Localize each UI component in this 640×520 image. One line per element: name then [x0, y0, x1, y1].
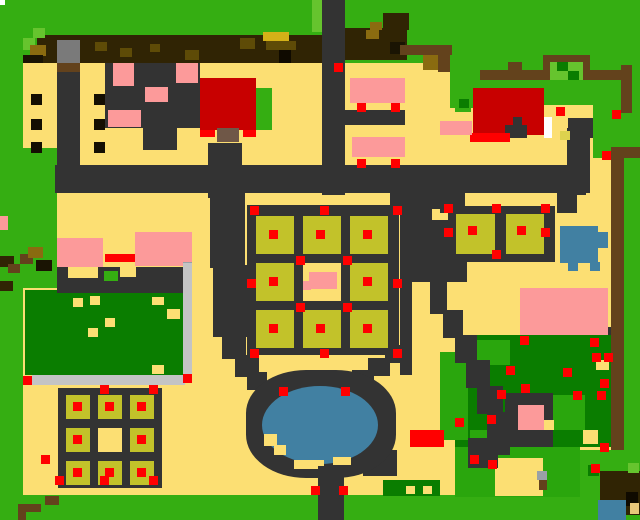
field-speck	[105, 318, 115, 327]
stall-roof	[113, 63, 134, 86]
red-marker	[506, 366, 515, 375]
red-marker	[247, 279, 256, 288]
red-marker	[393, 349, 402, 358]
stall-roof	[108, 110, 141, 127]
se-bush	[628, 463, 639, 473]
red-marker	[600, 379, 609, 388]
field-fence-v	[183, 263, 192, 379]
hedge	[256, 88, 272, 130]
red-marker	[137, 402, 146, 411]
red-marker	[339, 486, 348, 495]
red-marker	[149, 385, 158, 394]
orchard-clearing	[495, 458, 543, 496]
west-trunk	[0, 281, 13, 291]
red-marker	[137, 468, 146, 477]
red-marker	[492, 204, 501, 213]
red-marker	[391, 103, 400, 112]
red-marker	[600, 443, 609, 452]
red-marker	[279, 387, 288, 396]
red-marker	[269, 324, 278, 333]
red-marker	[311, 486, 320, 495]
center-road	[210, 193, 245, 268]
red-marker	[357, 103, 366, 112]
red-marker	[573, 391, 582, 400]
garden-fence	[508, 62, 522, 71]
lane-bush	[104, 271, 118, 281]
field-speck	[90, 296, 100, 305]
red-marker	[612, 110, 621, 119]
red-marker	[563, 368, 572, 377]
field-speck	[152, 365, 164, 374]
red-marker	[23, 376, 32, 385]
stall-roof	[145, 87, 168, 102]
village-map[interactable]	[0, 0, 640, 520]
stall-roof	[176, 63, 198, 83]
red-marker	[597, 391, 606, 400]
roof-spot	[120, 48, 132, 57]
lane-gap	[68, 267, 98, 278]
field-fence-h	[32, 375, 185, 385]
red-marker	[73, 402, 82, 411]
center-road	[208, 143, 242, 198]
roof-end	[23, 55, 43, 63]
red-marker	[468, 226, 477, 235]
garden-bush	[557, 62, 568, 71]
red-marker	[541, 228, 550, 237]
roof-spot	[150, 44, 160, 52]
edge-pixel	[0, 216, 8, 230]
roof-gold-shadow	[266, 41, 296, 50]
red-marker	[590, 338, 599, 347]
sw-trunk	[18, 504, 26, 520]
east-house	[520, 288, 608, 335]
gray-blob	[568, 118, 593, 138]
road-step	[455, 335, 477, 363]
corner-pixel	[0, 0, 5, 5]
red-marker	[604, 353, 613, 362]
field-speck	[167, 309, 180, 319]
east-fence	[611, 158, 624, 450]
west-house-a	[57, 238, 103, 267]
north-lane	[330, 110, 405, 125]
window	[31, 119, 42, 130]
red-marker	[250, 206, 259, 215]
alley	[57, 72, 80, 167]
animal-leg	[568, 262, 578, 271]
tree-branch	[370, 22, 382, 30]
red-marker	[521, 384, 530, 393]
red-marker	[320, 206, 329, 215]
red-marker	[393, 279, 402, 288]
west-trunk	[28, 247, 43, 258]
red-marker	[520, 336, 529, 345]
hedge-gap	[406, 486, 415, 494]
animal-leg	[590, 262, 600, 271]
main-street	[55, 165, 590, 193]
alley-top	[57, 63, 80, 72]
red-marker	[55, 476, 64, 485]
red-marker	[250, 349, 259, 358]
north-fence	[400, 45, 452, 55]
chimney	[57, 40, 80, 63]
window	[94, 119, 105, 130]
nw-plaza-entry	[143, 125, 177, 150]
garden-fence	[480, 70, 545, 80]
center-pink	[309, 272, 337, 289]
bush-core	[459, 99, 469, 108]
animal-blue	[560, 226, 598, 263]
roof-door	[279, 50, 291, 63]
field-speck	[88, 328, 98, 337]
red-marker	[41, 455, 50, 464]
center-road	[213, 265, 248, 337]
roof-spot	[95, 42, 107, 51]
gray-blob	[580, 138, 590, 158]
road-step	[466, 360, 490, 388]
orchard-sand	[544, 420, 554, 430]
se-water	[598, 500, 626, 520]
window	[94, 142, 105, 153]
orchard-pink	[518, 405, 544, 430]
orchard-clearing	[583, 430, 598, 444]
red-marker	[602, 151, 611, 160]
red-marker-large	[410, 430, 444, 447]
red-marker	[492, 250, 501, 259]
white-door	[544, 117, 552, 138]
red-marker	[269, 277, 278, 286]
red-marker	[105, 402, 114, 411]
red-marker	[363, 324, 372, 333]
pond-sand	[333, 457, 351, 465]
red-marker	[357, 159, 366, 168]
sw-trunk	[45, 496, 59, 505]
fence-post	[438, 55, 450, 72]
red-marker	[487, 415, 496, 424]
red-marker	[296, 303, 305, 312]
window	[94, 94, 105, 105]
red-marker	[455, 418, 464, 427]
red-marker	[73, 435, 82, 444]
red-marker	[73, 468, 82, 477]
red-marker	[517, 226, 526, 235]
red-marker	[343, 256, 352, 265]
sign-top	[537, 471, 547, 480]
garden-fence	[588, 70, 623, 80]
yellow-tile	[560, 131, 570, 140]
door-strip	[243, 130, 256, 137]
red-marker	[488, 460, 497, 469]
red-marker	[100, 385, 109, 394]
west-trunk	[8, 264, 20, 273]
house-strip	[105, 254, 135, 262]
pink-roof-small	[440, 121, 472, 135]
red-marker	[444, 204, 453, 213]
lane-gap	[120, 267, 136, 277]
red-marker	[363, 277, 372, 286]
red-marker	[316, 230, 325, 239]
pink-roof-north	[350, 78, 405, 103]
empty-plot	[98, 428, 122, 452]
window	[31, 142, 42, 153]
red-marker	[343, 303, 352, 312]
west-trunk	[36, 260, 52, 271]
bush-pixel	[33, 28, 45, 38]
red-building-west	[200, 78, 256, 130]
west-building-door	[217, 128, 239, 142]
animal-head	[596, 232, 608, 248]
field-speck	[73, 298, 83, 307]
east-fence-top	[611, 147, 640, 158]
red-marker	[149, 476, 158, 485]
grass-stripe	[312, 0, 322, 32]
tree-branch	[366, 30, 379, 39]
red-marker	[497, 390, 506, 399]
red-marker	[296, 256, 305, 265]
garden-post	[621, 65, 632, 113]
red-marker	[320, 349, 329, 358]
west-house-b	[135, 232, 192, 266]
street-stub	[557, 185, 577, 213]
center-pink	[303, 281, 311, 290]
red-marker	[556, 107, 565, 116]
field-speck	[152, 297, 164, 305]
garden-bush	[568, 71, 579, 80]
roof-spot	[185, 50, 199, 60]
road-step	[443, 310, 463, 338]
red-marker	[591, 464, 600, 473]
red-marker	[541, 204, 550, 213]
roof-gold	[263, 32, 289, 41]
hedge-gap	[423, 486, 432, 494]
red-marker	[100, 476, 109, 485]
red-marker	[269, 230, 278, 239]
red-marker	[341, 387, 350, 396]
red-marker	[391, 159, 400, 168]
red-marker	[444, 228, 453, 237]
se-sand	[630, 503, 639, 514]
red-marker	[363, 230, 372, 239]
pond-sand	[274, 445, 286, 455]
roof-spot	[240, 38, 255, 49]
window	[31, 94, 42, 105]
red-marker	[592, 353, 601, 362]
red-marker	[393, 206, 402, 215]
pink-roof-south	[352, 137, 405, 157]
red-strip	[470, 133, 510, 142]
red-marker	[334, 63, 343, 72]
red-marker	[316, 324, 325, 333]
red-marker	[183, 374, 192, 383]
sign-post	[539, 480, 547, 490]
red-marker	[470, 455, 479, 464]
door-strip	[200, 130, 215, 137]
red-marker	[137, 435, 146, 444]
